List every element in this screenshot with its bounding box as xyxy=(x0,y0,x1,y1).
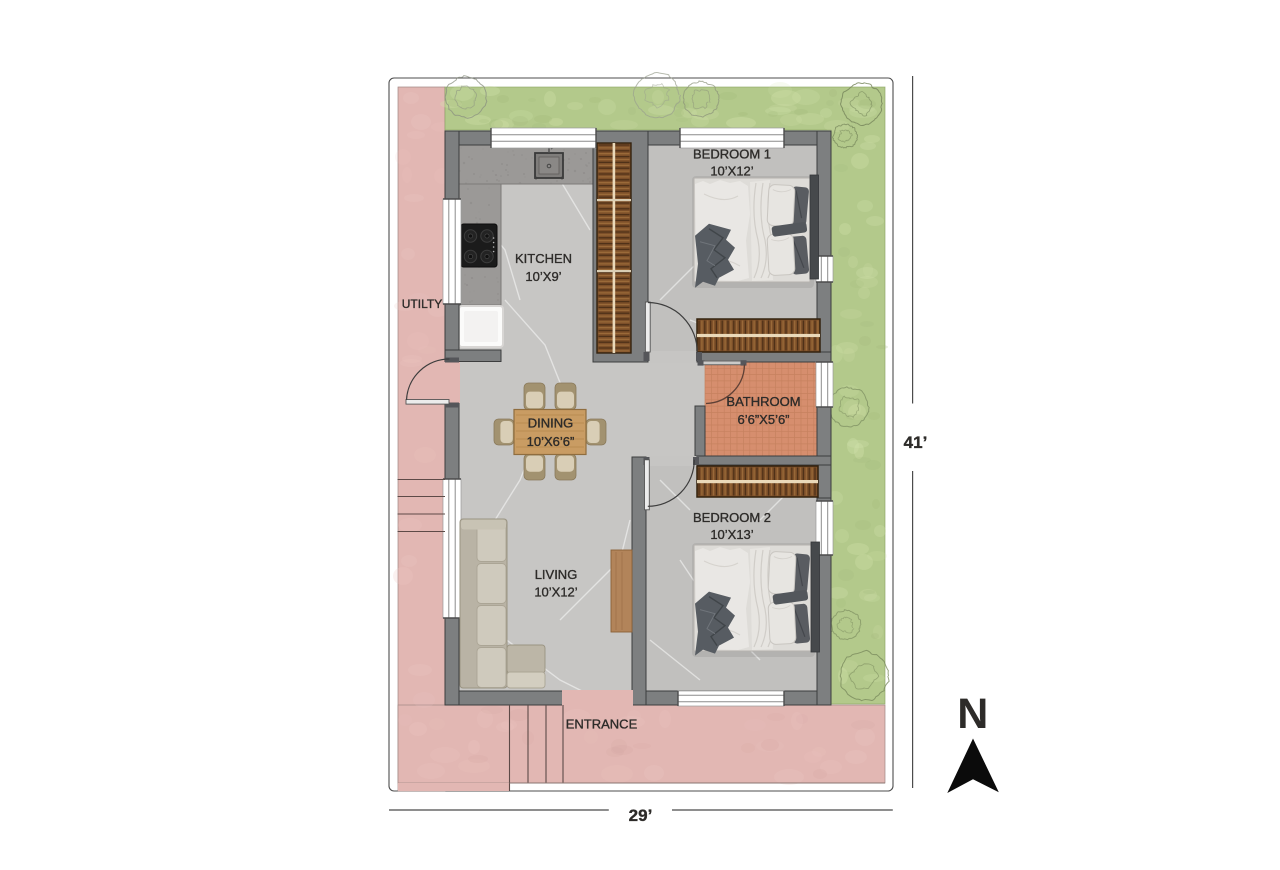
svg-text:10’X6’6”: 10’X6’6” xyxy=(527,434,575,449)
svg-text:10’X12’: 10’X12’ xyxy=(534,585,577,600)
svg-text:29’: 29’ xyxy=(629,806,653,825)
svg-text:N: N xyxy=(957,690,988,738)
svg-text:BEDROOM 2: BEDROOM 2 xyxy=(693,510,771,525)
svg-text:ENTRANCE: ENTRANCE xyxy=(566,717,638,732)
svg-text:UTILTY: UTILTY xyxy=(402,297,442,311)
svg-text:6’6”X5’6”: 6’6”X5’6” xyxy=(737,412,789,427)
svg-text:10’X13’: 10’X13’ xyxy=(710,527,753,542)
svg-text:10’X9’: 10’X9’ xyxy=(525,269,561,284)
svg-text:DINING: DINING xyxy=(528,416,574,431)
svg-text:BEDROOM 1: BEDROOM 1 xyxy=(693,147,771,162)
svg-text:BATHROOM: BATHROOM xyxy=(726,394,800,409)
svg-text:KITCHEN: KITCHEN xyxy=(515,251,572,266)
svg-text:LIVING: LIVING xyxy=(535,567,578,582)
svg-text:41’: 41’ xyxy=(904,433,928,452)
svg-text:10’X12’: 10’X12’ xyxy=(710,164,753,179)
